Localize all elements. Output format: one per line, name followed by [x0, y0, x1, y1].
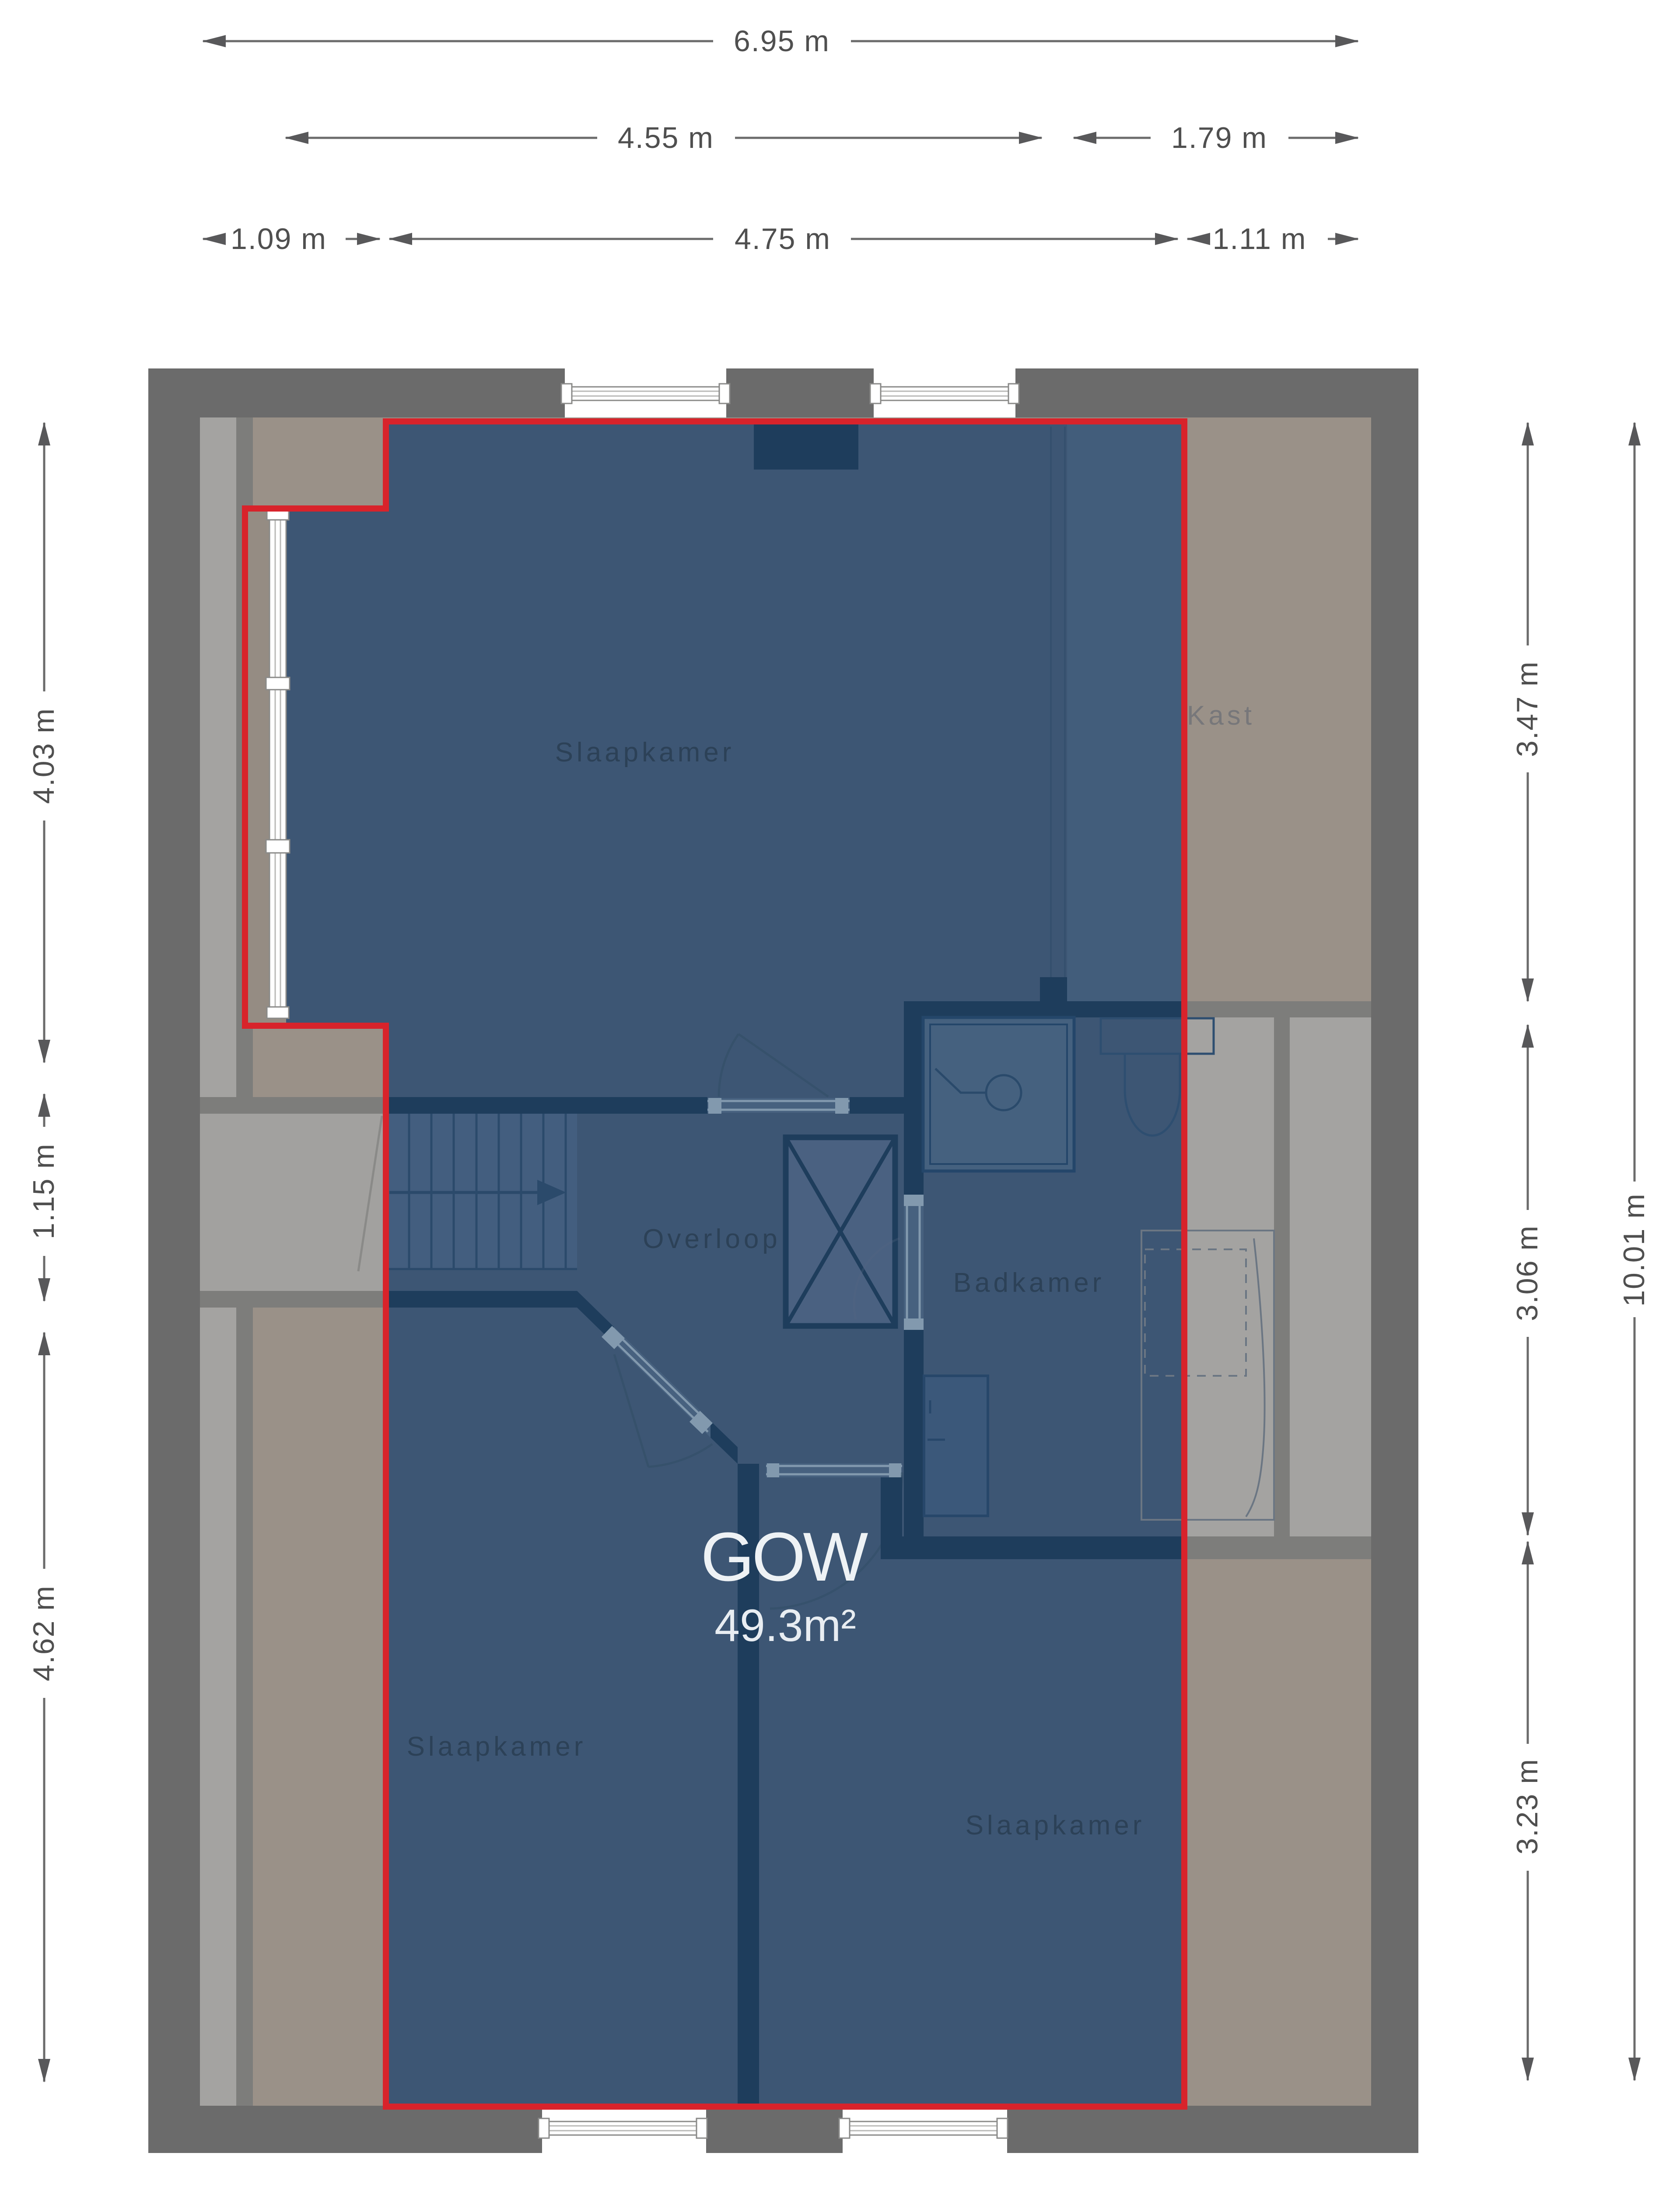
svg-text:Slaapkamer: Slaapkamer [966, 1810, 1145, 1841]
svg-text:GOW: GOW [701, 1518, 868, 1595]
svg-text:Slaapkamer: Slaapkamer [407, 1732, 587, 1762]
svg-text:49.3m²: 49.3m² [714, 1600, 856, 1651]
svg-text:1.79 m: 1.79 m [1171, 121, 1267, 154]
svg-text:3.47 m: 3.47 m [1511, 661, 1544, 757]
svg-text:4.62 m: 4.62 m [27, 1585, 60, 1681]
svg-text:4.03 m: 4.03 m [27, 708, 60, 804]
svg-text:1.11 m: 1.11 m [1213, 222, 1307, 256]
svg-text:Kast: Kast [1187, 701, 1255, 731]
svg-text:4.75 m: 4.75 m [735, 222, 831, 256]
svg-text:6.95 m: 6.95 m [734, 25, 830, 58]
svg-text:Overloop: Overloop [643, 1224, 781, 1254]
svg-text:Badkamer: Badkamer [953, 1268, 1105, 1298]
svg-text:3.06 m: 3.06 m [1511, 1225, 1544, 1321]
svg-text:10.01 m: 10.01 m [1617, 1193, 1651, 1307]
svg-text:3.23 m: 3.23 m [1511, 1758, 1544, 1855]
svg-text:1.09 m: 1.09 m [231, 222, 327, 256]
svg-text:Slaapkamer: Slaapkamer [555, 737, 735, 768]
svg-text:4.55 m: 4.55 m [618, 121, 714, 154]
svg-text:1.15 m: 1.15 m [27, 1143, 60, 1239]
